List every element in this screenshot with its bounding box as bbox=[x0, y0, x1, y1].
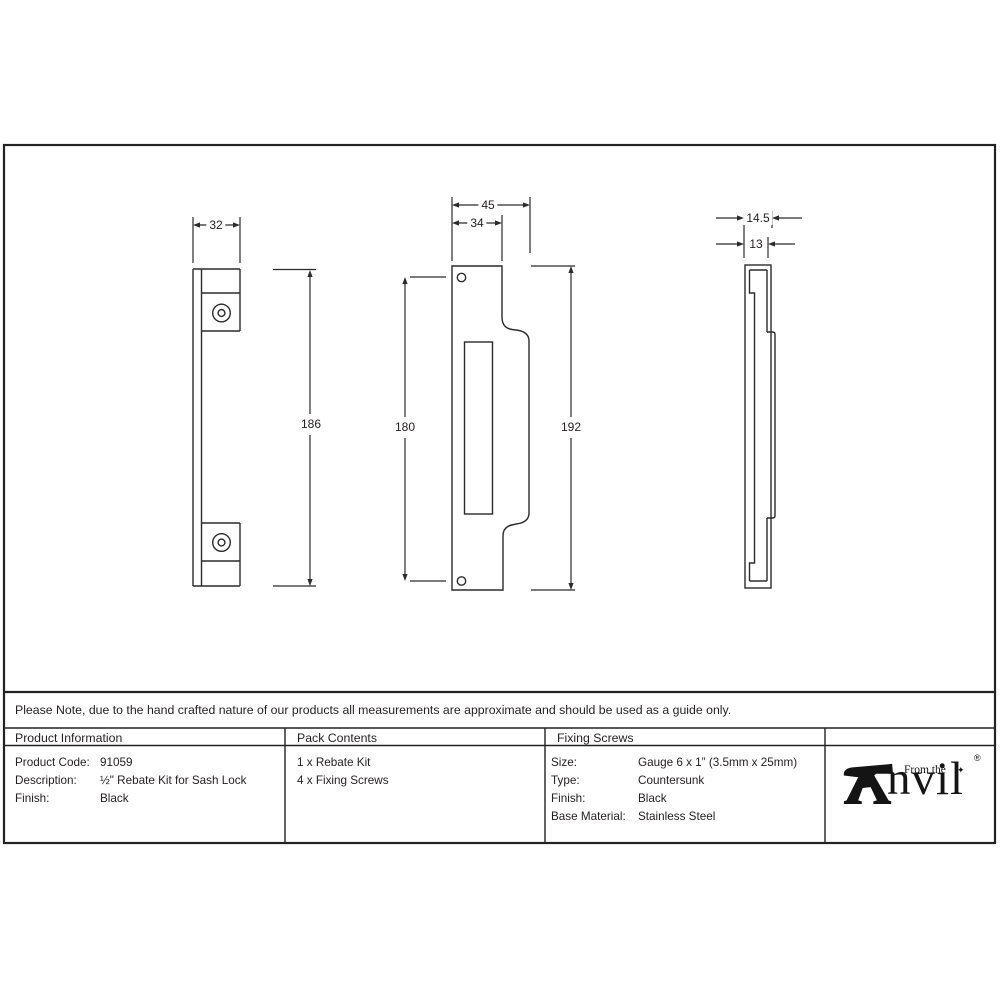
dim-label-side-depth-face: 13 bbox=[746, 237, 765, 251]
dim-32-arrow-right bbox=[233, 222, 240, 227]
pack-item-1: 1 x Rebate Kit bbox=[297, 755, 370, 770]
logo-star-icon: ✦ bbox=[957, 765, 965, 776]
technical-drawing-layer bbox=[0, 0, 1000, 1000]
keep-top-screw-hole-inner bbox=[218, 310, 225, 317]
dimension-lines bbox=[193, 197, 802, 590]
screw-finish-value: Black bbox=[638, 791, 667, 806]
screw-type-value: Countersunk bbox=[638, 773, 704, 788]
dim-label-keep-height: 186 bbox=[298, 417, 324, 431]
logo-name-text: nvil bbox=[887, 756, 964, 803]
anvil-top bbox=[844, 764, 893, 777]
side-profile-view bbox=[745, 265, 775, 588]
description-value: ½" Rebate Kit for Sash Lock bbox=[100, 773, 246, 788]
plate-top-screw-hole bbox=[457, 273, 465, 281]
finish-value: Black bbox=[100, 791, 129, 806]
dim-13-arrow-left bbox=[737, 241, 744, 246]
dim-label-plate-width-face: 34 bbox=[467, 216, 486, 230]
sheet-frame bbox=[4, 145, 995, 843]
finish-label: Finish: bbox=[15, 791, 49, 806]
screw-type-label: Type: bbox=[551, 773, 580, 788]
description-label: Description: bbox=[15, 773, 77, 788]
dim-34-arrow-right bbox=[495, 220, 502, 225]
keep-bottom-screw-hole bbox=[213, 534, 231, 552]
product-information-header: Product Information bbox=[15, 731, 122, 746]
screw-finish-label: Finish: bbox=[551, 791, 585, 806]
dim-45-arrow-right bbox=[523, 202, 530, 207]
dim-label-plate-height: 192 bbox=[558, 420, 584, 434]
product-code-value: 91059 bbox=[100, 755, 133, 770]
anvil-legs bbox=[844, 775, 891, 804]
dim-14_5-arrow-right bbox=[772, 215, 779, 220]
dim-34-arrow-left bbox=[452, 220, 459, 225]
registered-trademark-icon: ® bbox=[974, 753, 981, 763]
plate-lock-slot bbox=[465, 342, 493, 514]
measurement-disclaimer-note: Please Note, due to the hand crafted nat… bbox=[15, 703, 731, 718]
screw-material-value: Stainless Steel bbox=[638, 809, 715, 824]
screw-material-label: Base Material: bbox=[551, 809, 626, 824]
dim-192-arrow-top bbox=[568, 266, 573, 273]
anvil-logo: From the nvil ✦ ® bbox=[830, 742, 998, 814]
keep-top-screw-hole bbox=[213, 304, 231, 322]
anvil-icon bbox=[843, 763, 893, 804]
dim-label-side-depth-overall: 14.5 bbox=[743, 211, 772, 225]
dim-label-plate-hole-centres: 180 bbox=[392, 420, 418, 434]
screw-size-label: Size: bbox=[551, 755, 577, 770]
side-inner-left-step bbox=[750, 270, 755, 581]
dim-45-arrow-left bbox=[452, 202, 459, 207]
dim-186-arrow-bottom bbox=[307, 579, 312, 586]
pack-item-2: 4 x Fixing Screws bbox=[297, 773, 389, 788]
dim-label-plate-width-overall: 45 bbox=[478, 198, 497, 212]
outer-border bbox=[4, 145, 995, 843]
spec-sheet: 32 186 45 34 180 192 14.5 13 Please Note… bbox=[0, 0, 1000, 1000]
pack-contents-header: Pack Contents bbox=[297, 731, 377, 746]
dim-186-arrow-top bbox=[307, 270, 312, 277]
plate-bottom-screw-hole bbox=[457, 577, 465, 585]
dim-32-arrow-left bbox=[193, 222, 200, 227]
dim-180-arrow-top bbox=[402, 277, 407, 284]
keep-bottom-screw-hole-inner bbox=[218, 539, 225, 546]
dim-192-arrow-bottom bbox=[568, 583, 573, 590]
strike-plate-front-view bbox=[452, 266, 529, 590]
keep-front-view bbox=[193, 269, 240, 586]
fixing-screws-header: Fixing Screws bbox=[557, 731, 634, 746]
dim-label-keep-width: 32 bbox=[206, 218, 225, 232]
screw-size-value: Gauge 6 x 1” (3.5mm x 25mm) bbox=[638, 755, 797, 770]
dim-13-arrow-right bbox=[768, 241, 775, 246]
plate-outline bbox=[452, 266, 529, 590]
dim-180-arrow-bottom bbox=[402, 574, 407, 581]
product-code-label: Product Code: bbox=[15, 755, 90, 770]
